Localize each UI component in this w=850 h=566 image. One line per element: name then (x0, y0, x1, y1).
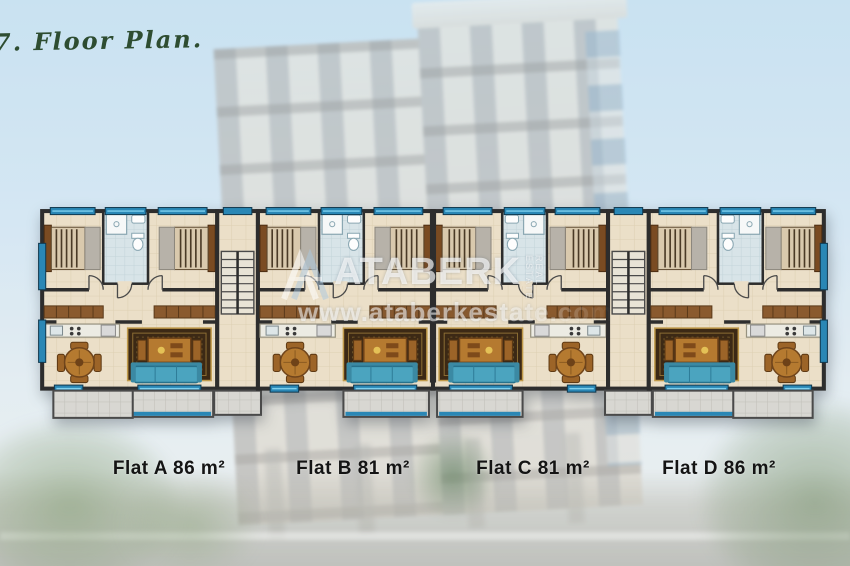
flat-a-label: Flat A 86 m² (84, 458, 254, 480)
party-wall (430, 209, 436, 383)
flat-c-plan (433, 208, 608, 417)
flat-c-label: Flat C 81 m² (448, 458, 618, 480)
staircase-1 (214, 208, 261, 415)
listing-image: 7. Floor Plan. (0, 0, 850, 566)
flat-d-corner-balcony (733, 391, 812, 418)
page-title: 7. Floor Plan. (0, 24, 203, 57)
floor-plan-svg (33, 203, 833, 433)
flat-a-corner-balcony (53, 391, 132, 418)
flat-b-label: Flat B 81 m² (268, 458, 438, 480)
flat-a-plan (42, 208, 217, 417)
flat-d-label: Flat D 86 m² (634, 458, 804, 480)
floor-plan (33, 203, 833, 433)
flat-d-plan (649, 208, 824, 417)
staircase-2 (605, 208, 652, 415)
flat-b-plan (258, 208, 433, 417)
